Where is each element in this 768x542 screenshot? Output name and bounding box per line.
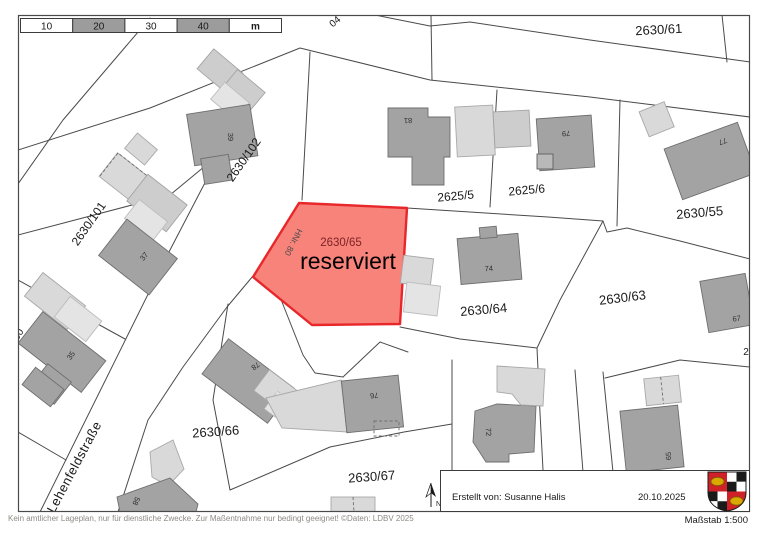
house-number: 74 [484, 264, 493, 274]
scale-bar: 10 20 30 40 m [21, 19, 282, 33]
scale-bar-label: 10 [41, 22, 53, 33]
house-number: 81 [404, 116, 413, 125]
parcel-label-cut-right: 2 [743, 347, 749, 358]
building-72-annex [497, 366, 545, 406]
garage-building [125, 133, 158, 165]
garage-building [644, 375, 682, 406]
house-number: 72 [484, 428, 493, 437]
parcel-label-2630-55: 2630/55 [676, 203, 724, 222]
building-76 [341, 375, 403, 433]
disclaimer-text: Kein amtlicher Lageplan, nur für dienstl… [8, 514, 414, 523]
building-67 [700, 273, 754, 332]
parcel-label-2630-61: 2630/61 [635, 21, 683, 38]
house-number: 39 [226, 133, 235, 142]
coat-of-arms-icon [708, 472, 746, 512]
created-by-label: Erstellt von: Susanne Halis [452, 492, 566, 503]
parcel-label-2625-6: 2625/6 [508, 181, 546, 198]
building-58 [117, 478, 198, 512]
house-number: 76 [370, 391, 379, 401]
house-number: 79 [562, 129, 571, 138]
date-label: 20.10.2025 [638, 492, 686, 503]
street-name-label: Lehenfeldstraße [44, 419, 105, 516]
scale-bar-label: 40 [198, 22, 210, 33]
garage-building [400, 255, 433, 286]
info-box: Erstellt von: Susanne Halis 20.10.2025 [441, 471, 750, 512]
parcel-label-2630-63: 2630/63 [598, 287, 646, 308]
cadastral-map-viewer: HNr. 80 2630/65 reserviert [0, 0, 768, 542]
building-72 [473, 404, 536, 462]
parcel-label-2630-67: 2630/67 [348, 467, 396, 485]
building-65 [620, 405, 684, 473]
building-74-annex [479, 226, 497, 238]
parcel-label-2630-64: 2630/64 [460, 300, 508, 319]
reserved-status-label: reserviert [300, 248, 396, 274]
map-canvas: HNr. 80 2630/65 reserviert [0, 0, 768, 542]
parcel-label-2630-66: 2630/66 [192, 422, 240, 440]
scale-bar-label: 30 [145, 22, 157, 33]
scale-bar-unit-label: m [251, 22, 260, 33]
building-74 [457, 233, 522, 284]
house-number: 65 [664, 452, 673, 461]
garage-building [403, 282, 440, 316]
building-79-annex [537, 154, 553, 169]
parcel-label-cut-top: 04 [328, 14, 344, 30]
house-number: 67 [732, 313, 742, 323]
north-arrow-icon: N [426, 483, 441, 508]
parcel-label-2630-101: 2630/101 [69, 199, 109, 248]
garage-building [455, 105, 496, 157]
parcel-label-2625-5: 2625/5 [437, 187, 475, 204]
scale-bar-label: 20 [93, 22, 105, 33]
building-81 [388, 108, 450, 185]
building-77 [664, 122, 756, 199]
garage-building [493, 110, 531, 148]
map-scale-label: Maßstab 1:500 [685, 515, 748, 526]
